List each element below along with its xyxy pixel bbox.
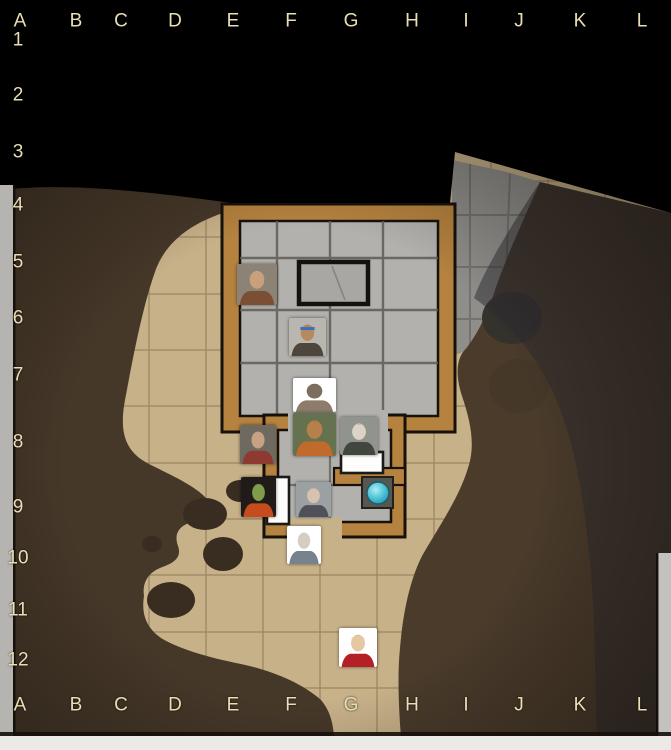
token-portrait xyxy=(241,477,276,517)
vtt-map-canvas[interactable]: AABBCCDDEEFFGGHHIIJJKKLL123456789101112 xyxy=(0,0,671,750)
token-green-skinned-sorcerer[interactable] xyxy=(241,477,276,517)
token-pale-dark-haired-woman[interactable] xyxy=(340,417,378,455)
token-portrait xyxy=(296,482,331,517)
token-portrait xyxy=(289,318,326,356)
token-portrait xyxy=(293,413,336,456)
token-portrait xyxy=(340,417,378,455)
token-purple-haired-archer[interactable] xyxy=(296,482,331,517)
token-red-haired-duelist[interactable] xyxy=(339,628,377,667)
token-white-haired-barbarian[interactable] xyxy=(237,264,277,305)
token-winged-helm-warrior[interactable] xyxy=(287,526,321,564)
token-layer xyxy=(0,0,671,750)
token-portrait xyxy=(339,628,377,667)
token-rust-creature[interactable] xyxy=(293,378,336,412)
token-gray-haired-noble[interactable] xyxy=(240,425,276,464)
token-shaggy-bearded-ranger[interactable] xyxy=(293,413,336,456)
token-blue-bandana-monk[interactable] xyxy=(289,318,326,356)
token-portrait xyxy=(293,378,336,412)
token-portrait xyxy=(237,264,277,305)
token-portrait xyxy=(240,425,276,464)
token-portrait xyxy=(287,526,321,564)
